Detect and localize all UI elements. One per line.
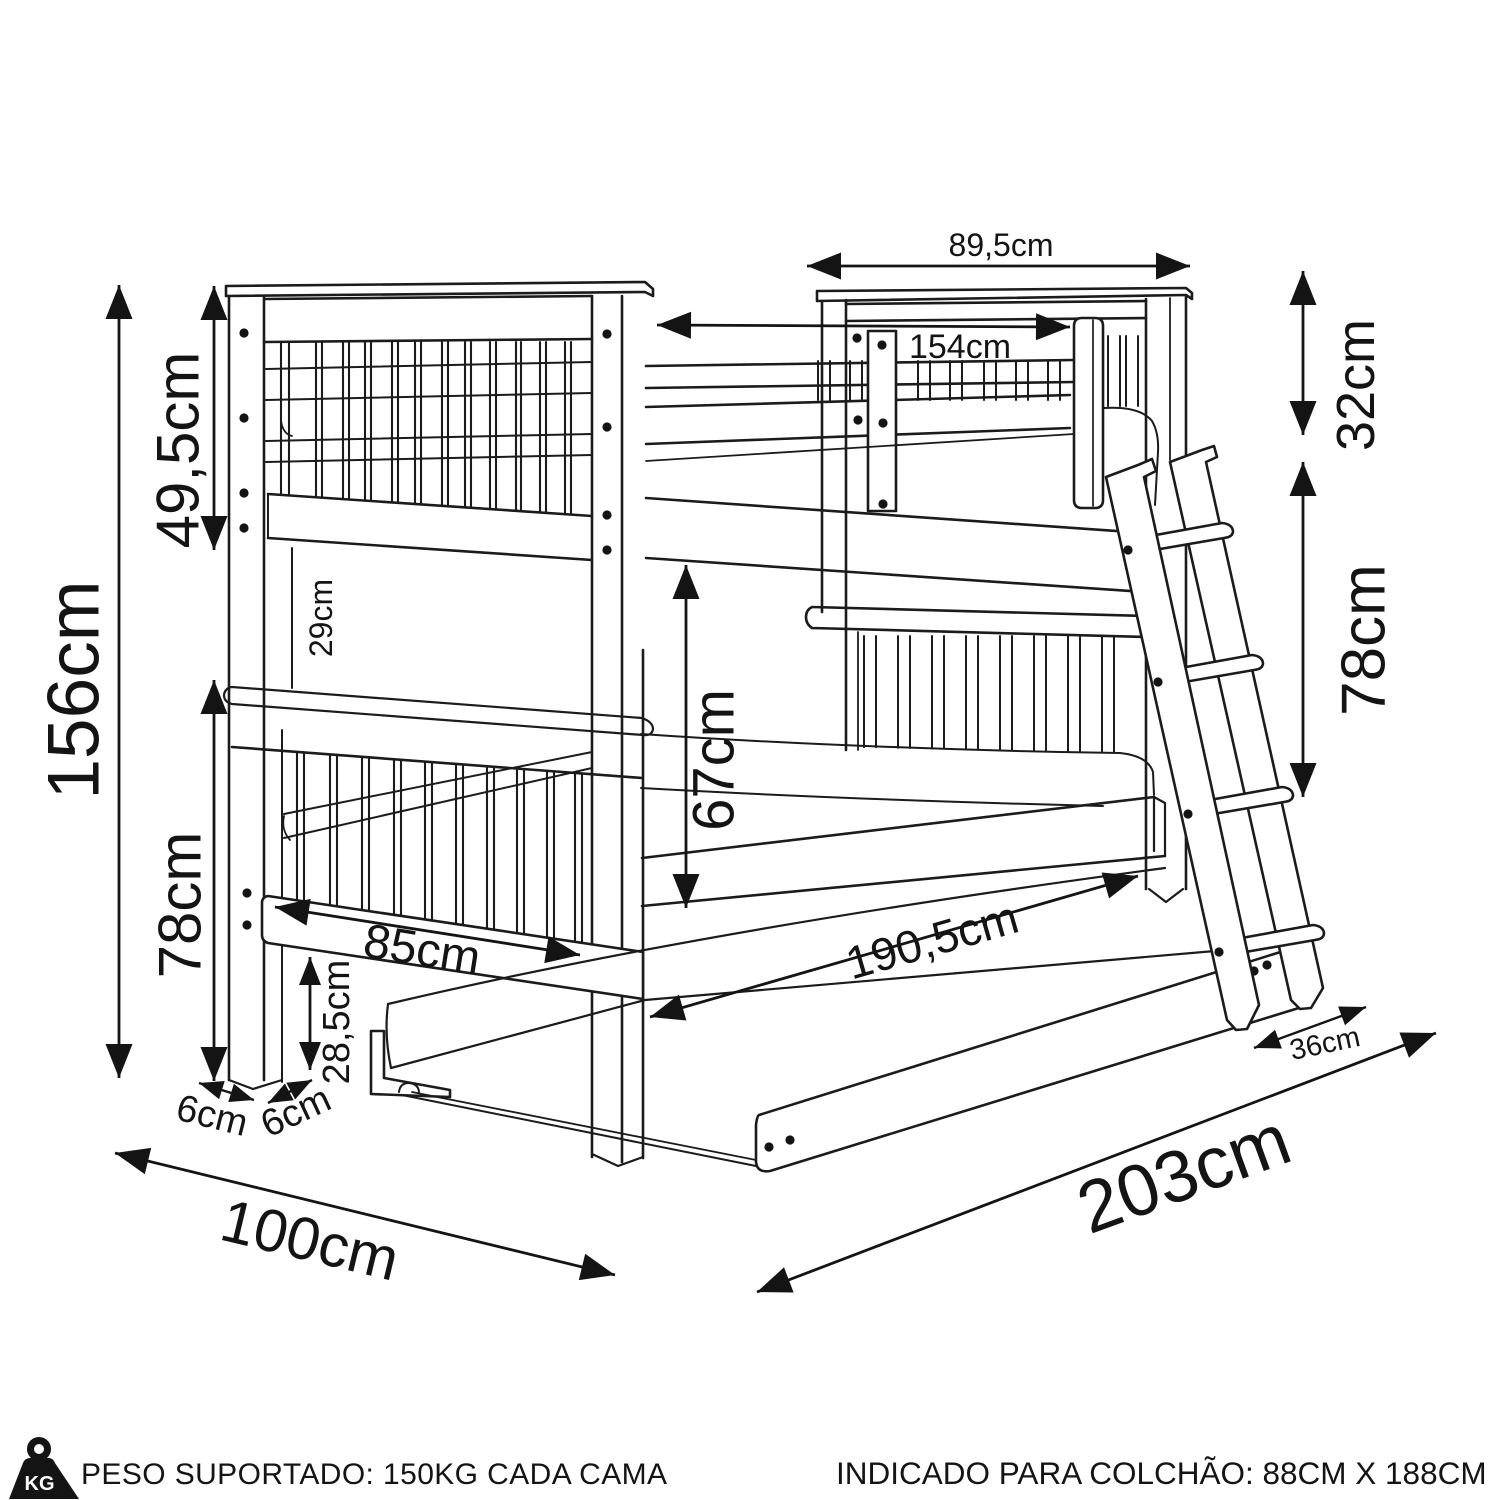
svg-text:INDICADO PARA COLCHÃO: 88CM X: INDICADO PARA COLCHÃO: 88CM X 188CM <box>836 1455 1487 1491</box>
svg-text:KG: KG <box>25 1473 55 1495</box>
svg-text:156cm: 156cm <box>34 580 115 799</box>
svg-text:28,5cm: 28,5cm <box>316 960 358 1085</box>
svg-text:49,5cm: 49,5cm <box>145 352 212 549</box>
svg-text:29cm: 29cm <box>303 579 339 657</box>
svg-text:32cm: 32cm <box>1326 319 1386 451</box>
svg-text:67cm: 67cm <box>682 689 747 831</box>
svg-text:154cm: 154cm <box>909 328 1011 366</box>
svg-text:PESO SUPORTADO: 150KG CADA CAM: PESO SUPORTADO: 150KG CADA CAMA <box>81 1458 667 1491</box>
svg-text:78cm: 78cm <box>1330 564 1399 716</box>
svg-text:78cm: 78cm <box>147 832 214 979</box>
svg-text:89,5cm: 89,5cm <box>949 227 1054 263</box>
